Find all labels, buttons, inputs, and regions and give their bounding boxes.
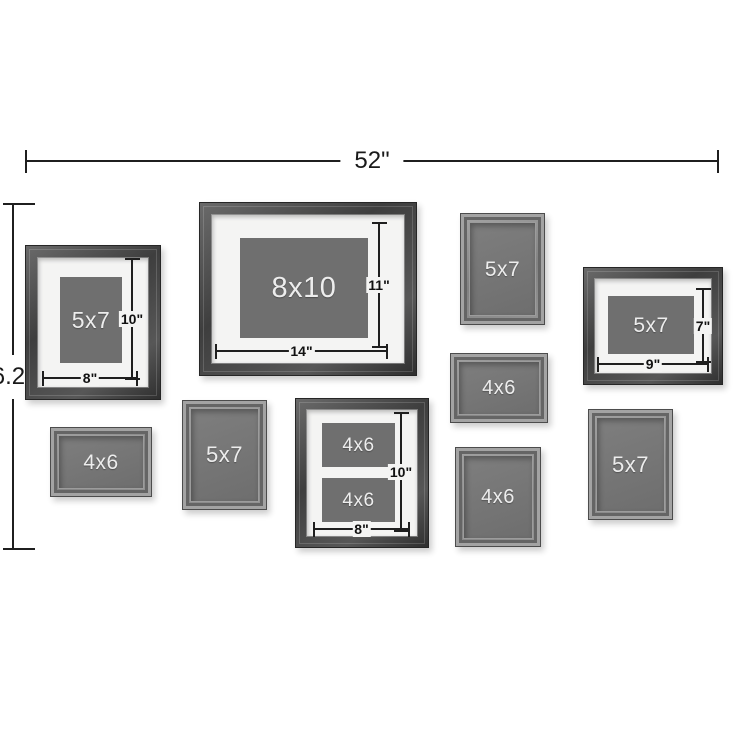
frame-height-dimension-line: 7" — [702, 288, 704, 363]
gallery-wall-dimension-diagram: 52" 6.25" 5x7 10" 8" 8x10 11" 14" 5x7 — [0, 0, 750, 750]
overall-width-label: 52" — [340, 145, 403, 177]
photo-placeholder: 8x10 — [240, 238, 368, 338]
frame-width-dimension-line: 9" — [597, 363, 709, 365]
photo-size-label: 5x7 — [633, 315, 668, 336]
frame-5x7-matted-portrait: 5x7 10" 8" — [25, 245, 161, 400]
photo-size-label: 4x6 — [482, 378, 516, 398]
frame-5x7-plain-portrait: 5x7 — [460, 213, 545, 325]
overall-width-dimension-line: 52" — [25, 160, 719, 162]
frame-width-dimension-line: 8" — [313, 528, 410, 530]
photo-size-label: 4x6 — [342, 491, 374, 510]
frame-height-dimension-line: 11" — [378, 222, 380, 348]
frame-height-dimension-line: 10" — [400, 412, 402, 532]
photo-size-label: 4x6 — [83, 452, 118, 473]
photo-size-label: 5x7 — [206, 444, 243, 466]
frame-height-label: 11" — [366, 277, 391, 293]
photo-placeholder-top: 4x6 — [322, 423, 395, 467]
frame-4x6-plain-portrait: 4x6 — [455, 447, 541, 547]
photo-size-label: 8x10 — [272, 274, 337, 303]
photo-placeholder: 4x6 — [459, 362, 539, 414]
photo-placeholder: 5x7 — [470, 223, 535, 315]
frame-5x7-plain-portrait: 5x7 — [182, 400, 267, 510]
frame-height-label: 7" — [694, 318, 712, 334]
frame-width-label: 9" — [644, 356, 662, 372]
frame-collage-matted: 4x6 4x6 10" 8" — [295, 398, 429, 548]
frame-4x6-plain-landscape: 4x6 — [450, 353, 548, 423]
photo-size-label: 4x6 — [481, 487, 515, 507]
frame-height-label: 10" — [388, 464, 414, 480]
photo-size-label: 4x6 — [342, 436, 374, 455]
photo-placeholder-bottom: 4x6 — [322, 478, 395, 522]
frame-width-dimension-line: 14" — [215, 350, 388, 352]
frame-height-dimension-line: 10" — [131, 258, 133, 380]
photo-placeholder: 5x7 — [597, 418, 664, 511]
frame-5x7-plain-portrait: 5x7 — [588, 409, 673, 520]
frame-width-label: 14" — [288, 343, 314, 359]
photo-placeholder: 4x6 — [59, 436, 143, 488]
photo-size-label: 5x7 — [72, 309, 111, 332]
frame-height-label: 10" — [119, 311, 145, 327]
photo-placeholder: 4x6 — [464, 456, 532, 538]
frame-width-label: 8" — [81, 370, 99, 386]
photo-placeholder: 5x7 — [608, 296, 694, 354]
overall-height-dimension-line: 6.25" — [12, 205, 14, 548]
frame-5x7-matted-landscape: 5x7 7" 9" — [583, 267, 723, 385]
frame-8x10-matted-landscape: 8x10 11" 14" — [199, 202, 417, 376]
photo-placeholder: 5x7 — [60, 277, 122, 363]
frame-4x6-plain-landscape: 4x6 — [50, 427, 152, 497]
frame-width-label: 8" — [352, 521, 370, 537]
photo-size-label: 5x7 — [485, 259, 520, 280]
frame-width-dimension-line: 8" — [42, 377, 138, 379]
photo-size-label: 5x7 — [612, 454, 649, 476]
photo-placeholder: 5x7 — [191, 409, 258, 501]
